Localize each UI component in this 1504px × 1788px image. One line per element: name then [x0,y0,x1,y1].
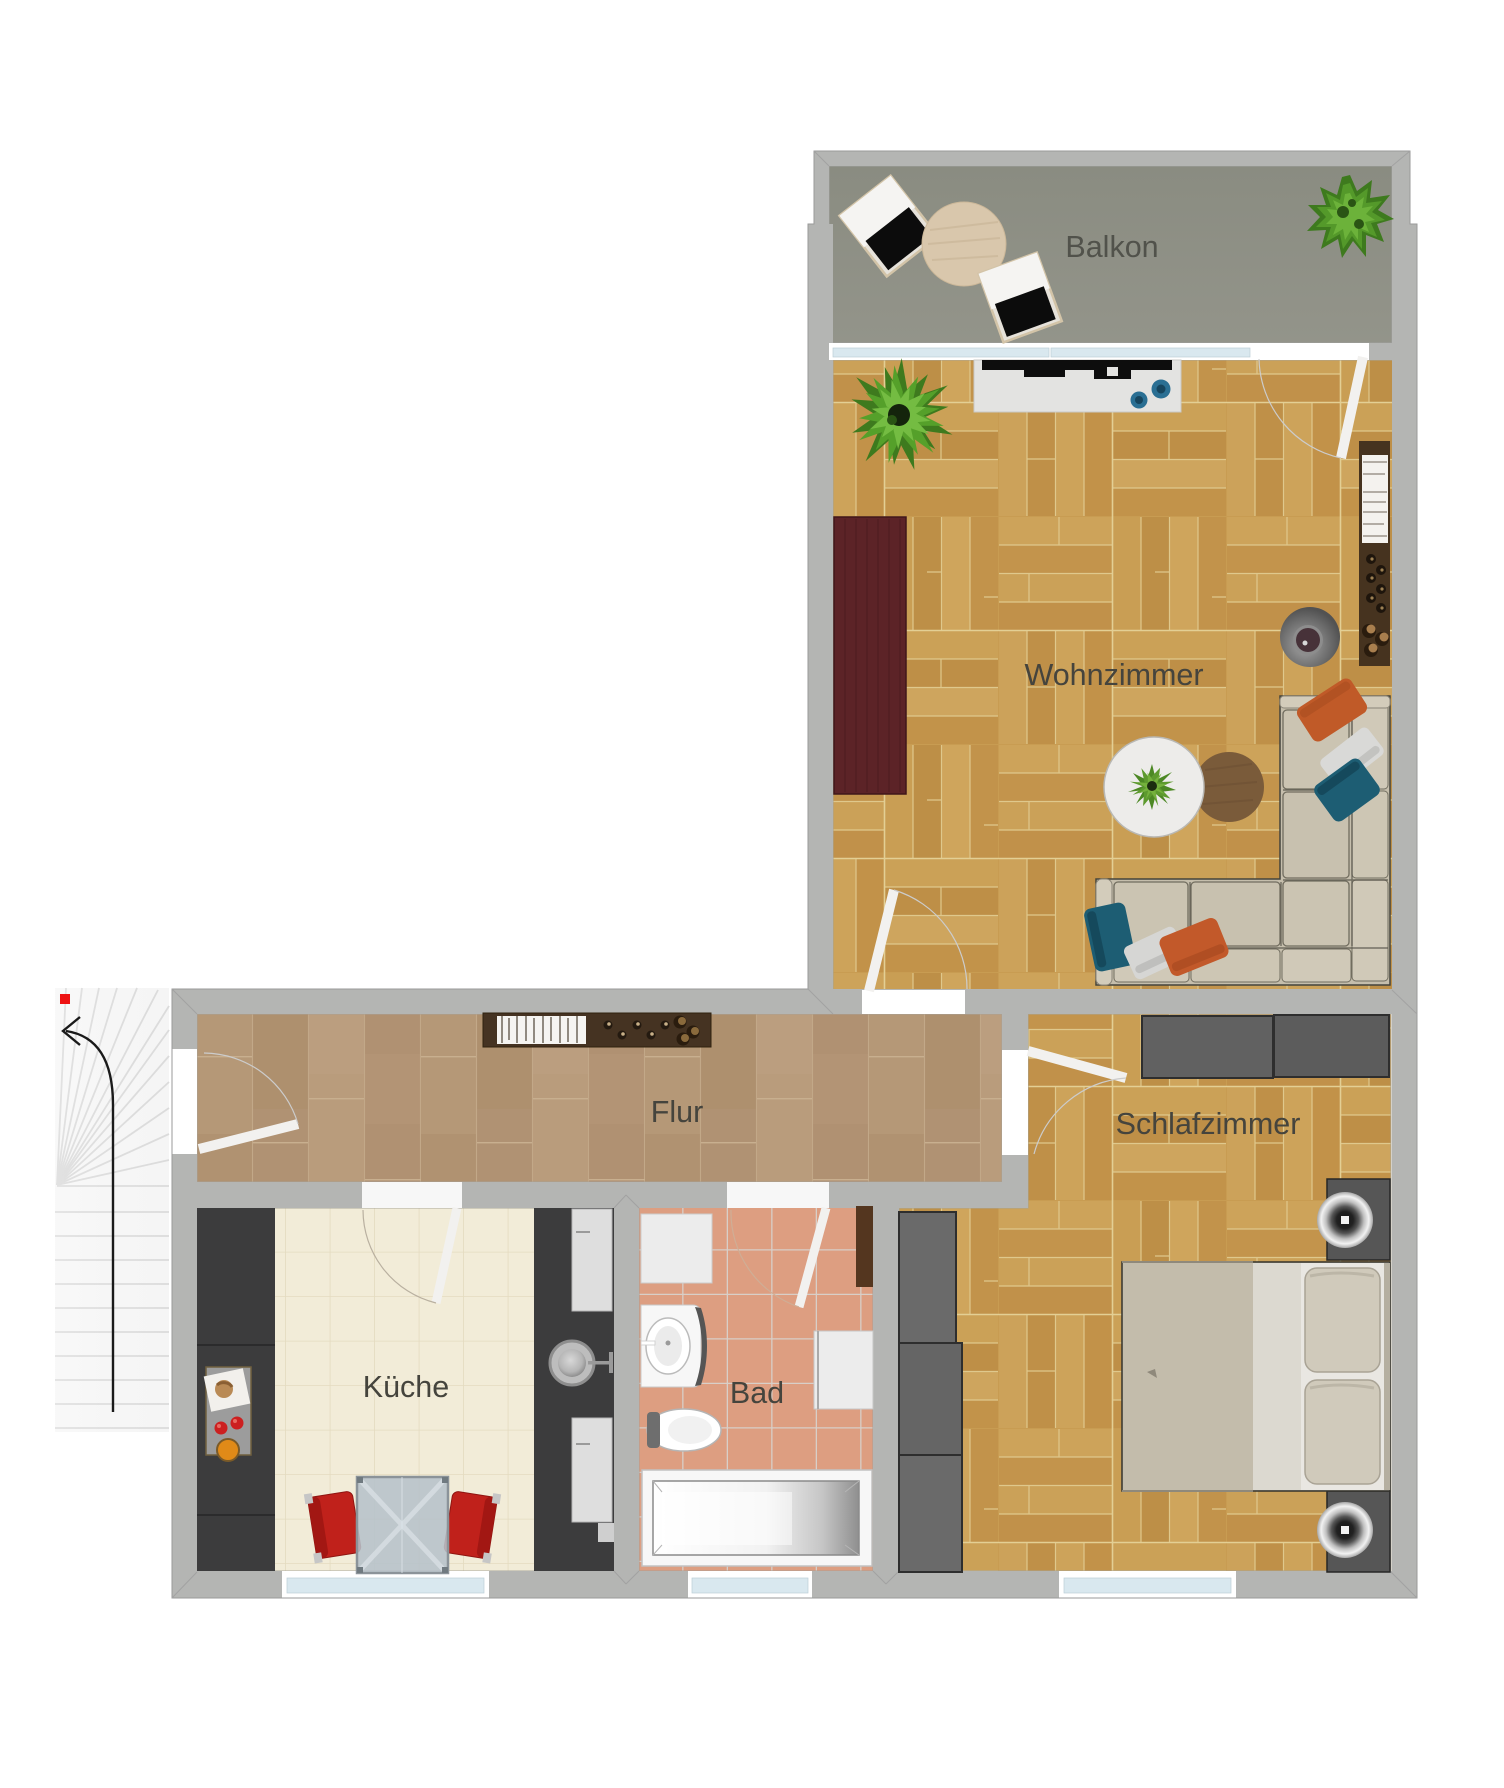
svg-text:Küche: Küche [363,1370,449,1404]
svg-text:Bad: Bad [730,1376,784,1410]
svg-text:Schlafzimmer: Schlafzimmer [1116,1107,1301,1141]
svg-text:Flur: Flur [651,1095,704,1129]
svg-text:Balkon: Balkon [1065,230,1158,264]
svg-text:Wohnzimmer: Wohnzimmer [1024,658,1203,692]
